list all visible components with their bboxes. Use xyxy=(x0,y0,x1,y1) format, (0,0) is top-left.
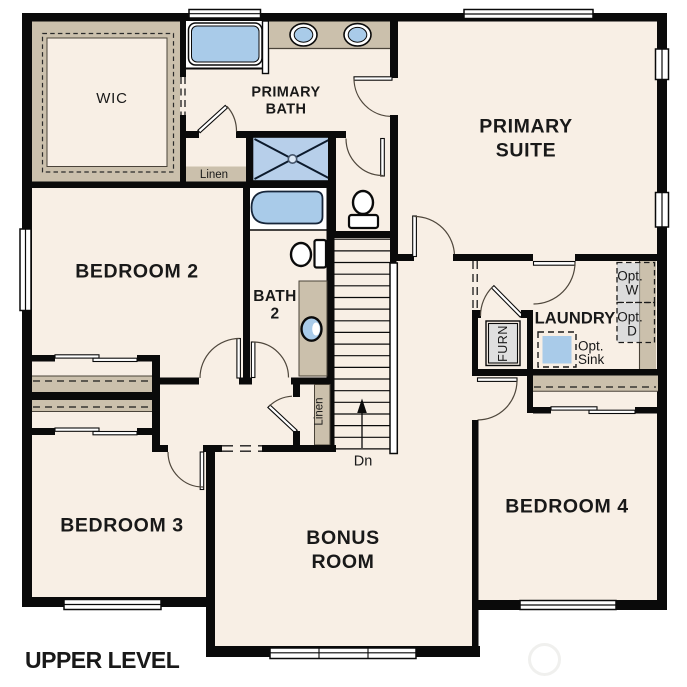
svg-text:ROOM: ROOM xyxy=(311,551,374,573)
svg-text:SUITE: SUITE xyxy=(496,140,556,162)
svg-text:LAUNDRY: LAUNDRY xyxy=(535,310,616,328)
svg-text:Dn: Dn xyxy=(354,454,373,470)
svg-text:Opt.: Opt. xyxy=(617,269,643,284)
svg-text:BATH: BATH xyxy=(253,288,297,305)
svg-text:Linen: Linen xyxy=(314,397,326,425)
svg-text:WIC: WIC xyxy=(96,90,128,107)
svg-text:BEDROOM 3: BEDROOM 3 xyxy=(60,515,184,537)
svg-text:BONUS: BONUS xyxy=(306,527,379,549)
svg-text:2: 2 xyxy=(270,306,279,323)
svg-text:Sink: Sink xyxy=(578,352,605,367)
svg-text:BEDROOM 4: BEDROOM 4 xyxy=(505,496,629,518)
svg-text:UPPER LEVEL: UPPER LEVEL xyxy=(25,647,180,673)
svg-text:W: W xyxy=(626,283,639,298)
svg-text:BATH: BATH xyxy=(266,102,307,118)
svg-text:Opt.: Opt. xyxy=(617,310,643,325)
svg-text:BEDROOM 2: BEDROOM 2 xyxy=(75,261,199,283)
svg-text:PRIMARY: PRIMARY xyxy=(479,116,572,138)
svg-text:D: D xyxy=(627,324,637,339)
svg-text:Linen: Linen xyxy=(200,169,228,181)
svg-text:FURN: FURN xyxy=(496,325,510,362)
svg-text:PRIMARY: PRIMARY xyxy=(251,85,320,101)
